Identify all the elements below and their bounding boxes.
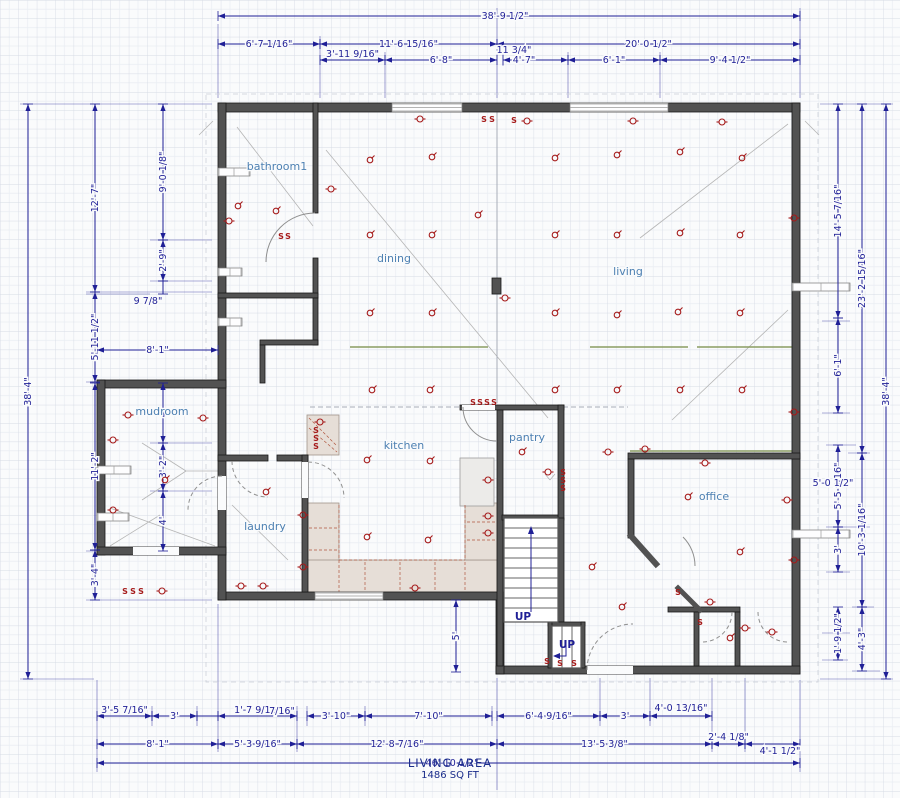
dimension-label: 12'-8 7/16" <box>371 739 424 750</box>
switch-symbol: S <box>481 115 487 124</box>
room-label-office: office <box>699 490 729 503</box>
dimension-label: 3'-5 7/16" <box>101 705 148 716</box>
room-label-dining: dining <box>377 252 411 265</box>
dimension-label: 23'-2 15/16" <box>857 249 868 308</box>
door-opening <box>587 666 633 674</box>
switch-symbol: S <box>571 659 577 668</box>
dimension-label: 3'-2" <box>158 456 169 479</box>
dimension-label: 6'-8" <box>430 55 453 66</box>
switch-symbol: S <box>470 398 476 407</box>
dimension-label: 20'-0 1/2" <box>625 39 672 50</box>
switch-symbol: S <box>313 442 319 451</box>
wall-segment <box>97 380 226 388</box>
wall-segment <box>558 405 564 520</box>
wall-segment <box>668 607 740 612</box>
dimension-label: 6'-1" <box>833 354 844 377</box>
kitchen-counter <box>307 560 497 592</box>
dimension-label: 6'-7 1/16" <box>246 39 293 50</box>
wall-segment <box>260 345 265 383</box>
dimension-label: 3'-11 9/16" <box>326 49 379 60</box>
dimension-label: 4'-7" <box>513 55 536 66</box>
wall-segment <box>492 278 501 294</box>
door-opening <box>218 476 226 510</box>
dimension-label: 38'-4" <box>881 377 892 406</box>
dimension-label: 10'-3 1/16" <box>857 504 868 557</box>
door-opening <box>302 462 308 498</box>
wall-segment <box>628 459 634 538</box>
dimension-label: 3'-4" <box>90 564 101 587</box>
floorplan-canvas: 38'-9 1/2"6'-7 1/16"11'-6 15/16"20'-0 1/… <box>0 0 900 798</box>
switch-symbol: S <box>489 115 495 124</box>
dimension-label: 11'-2" <box>90 452 101 481</box>
dimension-label: 1'-9 1/2" <box>833 613 844 654</box>
switch-symbol: S <box>278 232 284 241</box>
room-label-mudroom: mudroom <box>135 405 188 418</box>
dimension-label: 4'-0 13/16" <box>655 703 708 714</box>
wall-segment <box>792 103 800 674</box>
appliance <box>460 458 494 506</box>
dimension-label: 2'-9" <box>158 249 169 272</box>
switch-symbol: S <box>138 587 144 596</box>
wall-segment <box>558 518 564 622</box>
room-label-kitchen: kitchen <box>384 439 425 452</box>
dimension-label: 14'-5 7/16" <box>833 185 844 238</box>
kitchen-counter <box>465 503 497 560</box>
dimension-label: 9'-0 1/8" <box>158 152 169 193</box>
room-label-living: living <box>613 265 643 278</box>
dimension-label: 6'-1" <box>603 55 626 66</box>
switch-symbol: S <box>285 232 291 241</box>
dimension-label: 9 7/8" <box>134 296 163 307</box>
wall-segment <box>218 103 226 600</box>
switch-symbol: S <box>675 588 681 597</box>
dimension-label: 8'-1" <box>146 345 169 356</box>
dimension-label: 4' <box>158 517 169 526</box>
wall-segment <box>313 258 318 298</box>
dimension-label: 4'-1 1/2" <box>760 746 801 757</box>
switch-symbol: S <box>130 587 136 596</box>
dimension-label: 9'-4 1/2" <box>710 55 751 66</box>
dimension-label: 5'-11 1/2" <box>90 314 101 361</box>
dimension-label: 3' <box>170 711 179 722</box>
switch-symbol: S <box>511 116 517 125</box>
dimension-label: 46'-10 1/2" <box>426 758 479 769</box>
switch-symbol: S <box>477 398 483 407</box>
wall-segment <box>218 455 268 461</box>
dimension-label: 38'-9 1/2" <box>482 11 529 22</box>
wall-segment <box>735 612 740 666</box>
dimension-label: 6'-4 9/16" <box>525 711 572 722</box>
door-opening <box>133 547 179 555</box>
dimension-label: 4'-3" <box>857 628 868 651</box>
wall-segment <box>628 453 800 459</box>
dimension-label: 8'-1" <box>146 739 169 750</box>
room-label-bathroom1: bathroom1 <box>247 160 307 173</box>
wall-segment <box>313 103 318 213</box>
dimension-label: 7'-10" <box>414 711 443 722</box>
wall-segment <box>313 298 318 345</box>
wall-segment <box>218 293 318 298</box>
dimension-label: 5'-0 1/2" <box>813 478 854 489</box>
wall-segment <box>260 340 318 345</box>
room-label-pantry: pantry <box>509 431 546 444</box>
dimension-label: 2'-4 1/8" <box>708 732 749 743</box>
wall-segment <box>497 410 503 666</box>
switch-symbol: S <box>557 659 563 668</box>
switch-symbol: S <box>484 398 490 407</box>
dimension-label: 12'-7" <box>90 184 101 213</box>
floorplan-drawing: 38'-9 1/2"6'-7 1/16"11'-6 15/16"20'-0 1/… <box>0 0 900 798</box>
dimension-label: 11'-6 15/16" <box>379 39 438 50</box>
dimension-label: 3' <box>833 545 844 554</box>
wall-segment <box>218 103 800 112</box>
switch-symbol: S <box>491 398 497 407</box>
stairs-up-label: UP <box>559 639 576 651</box>
stairs-up-label: UP <box>515 611 532 623</box>
room-label-laundry: laundry <box>244 520 286 533</box>
dimension-label: 5'-3 9/16" <box>234 739 281 750</box>
dimension-label: 38'-4" <box>23 377 34 406</box>
dimension-label: 3'-10" <box>322 711 351 722</box>
switch-symbol: S <box>544 657 550 666</box>
wall-segment <box>496 666 800 674</box>
grid-background <box>0 0 900 798</box>
switch-symbol: S <box>560 484 566 493</box>
dimension-label: 3' <box>621 711 630 722</box>
dimension-label: 5' <box>451 632 462 641</box>
switch-symbol: S <box>697 618 703 627</box>
switch-symbol: S <box>122 587 128 596</box>
dimension-label: 13'-5 3/8" <box>581 739 628 750</box>
dimension-label: 7/16" <box>269 706 295 717</box>
